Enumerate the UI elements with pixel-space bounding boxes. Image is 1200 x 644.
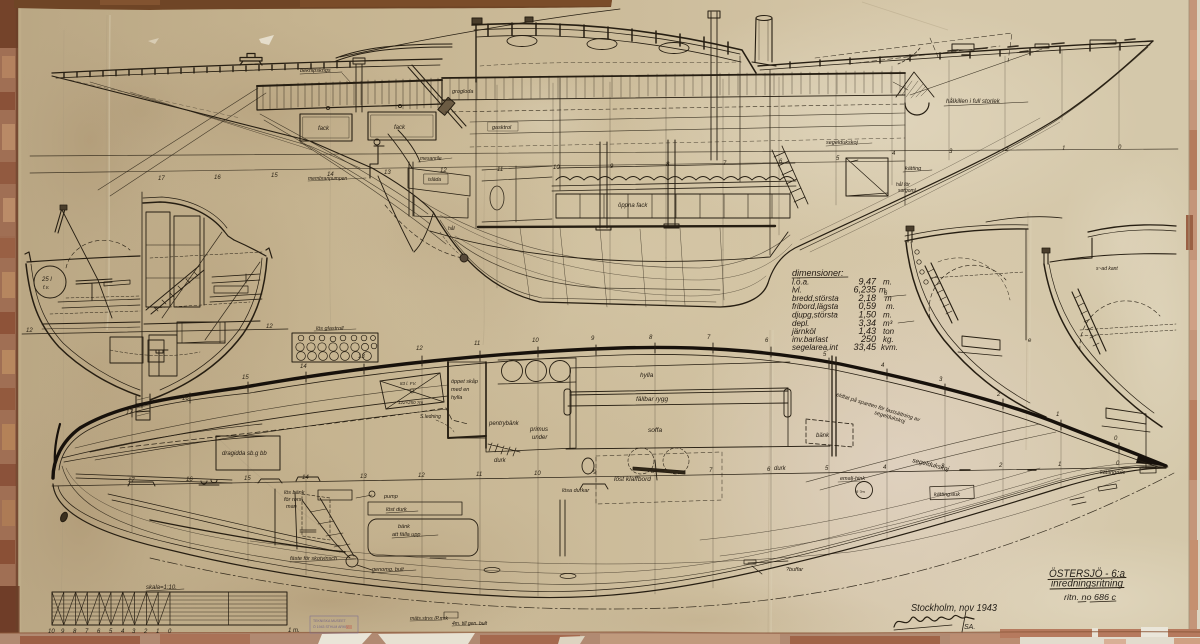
svg-text:25 l: 25 l (41, 277, 52, 283)
svg-text:ritn. no 686 c: ritn. no 686 c (1064, 592, 1117, 602)
svg-text:lösa durkar: lösa durkar (562, 488, 590, 494)
svg-text:för rors-: för rors- (284, 497, 303, 503)
svg-text:16: 16 (214, 175, 221, 181)
svg-text:14: 14 (302, 475, 309, 481)
svg-text:man: man (286, 504, 297, 510)
svg-text:pump: pump (383, 494, 398, 500)
svg-text:hål: hål (448, 225, 456, 232)
svg-text:16: 16 (182, 396, 189, 402)
svg-text:membranpumpen: membranpumpen (308, 176, 347, 182)
svg-text:lös bänk: lös bänk (284, 490, 305, 496)
svg-text:11: 11 (497, 167, 503, 173)
svg-text:15: 15 (244, 476, 251, 482)
svg-text:hylla: hylla (640, 372, 654, 379)
svg-text:mesanrile: mesanrile (420, 156, 442, 162)
svg-text:12: 12 (416, 346, 423, 352)
svg-text:2: 2 (998, 463, 1003, 469)
svg-text:2: 2 (143, 629, 148, 635)
svg-text:83 l. FV.: 83 l. FV. (400, 381, 417, 386)
svg-text:kättingrule: kättingrule (1100, 470, 1125, 476)
svg-text:durk: durk (774, 466, 787, 472)
svg-text:öppna fack: öppna fack (618, 203, 648, 209)
svg-text:1: 1 (156, 629, 159, 635)
svg-text:11: 11 (474, 341, 480, 347)
svg-text:4m. till gen. bult: 4m. till gen. bult (452, 621, 488, 627)
svg-text:12: 12 (266, 324, 273, 330)
svg-text:13: 13 (360, 474, 367, 480)
svg-text:Stockholm, nov 1943: Stockholm, nov 1943 (911, 603, 997, 614)
svg-text:2: 2 (996, 392, 1001, 398)
svg-text:kvm.: kvm. (881, 343, 898, 352)
svg-text:bänk: bänk (398, 524, 410, 530)
svg-text:15: 15 (242, 375, 249, 381)
svg-text:8 ?m: 8 ?m (856, 489, 866, 494)
svg-text:med en: med en (451, 387, 469, 393)
svg-text:14: 14 (300, 364, 307, 370)
svg-text:lös glastroll: lös glastroll (316, 326, 344, 332)
svg-text:fack: fack (394, 125, 406, 131)
svg-text:grogloda: grogloda (452, 89, 473, 95)
svg-text:kättingsluk: kättingsluk (934, 492, 960, 498)
svg-text:?buffar: ?buffar (786, 567, 804, 573)
svg-text:primus: primus (529, 427, 548, 433)
svg-text:gasktrol: gasktrol (492, 125, 512, 131)
svg-text:soffa: soffa (648, 427, 662, 434)
svg-text:10: 10 (532, 338, 539, 344)
svg-text:1: 1 (1062, 146, 1065, 152)
svg-text:fällbar rygg: fällbar rygg (636, 396, 669, 403)
svg-text:öppet skåp: öppet skåp (451, 378, 478, 385)
svg-text:S.ledning: S.ledning (420, 414, 441, 420)
svg-text:15: 15 (271, 173, 278, 179)
svg-text:10: 10 (534, 471, 541, 477)
svg-text:fack: fack (318, 126, 330, 132)
svg-text:1 m.: 1 m. (288, 628, 300, 634)
svg-text:mäts.strvs /P.mrk: mäts.strvs /P.mrk (410, 616, 448, 622)
svg-text:isläda: isläda (428, 177, 441, 183)
svg-text:under: under (532, 435, 548, 441)
svg-text:håIkillen i full storlek: håIkillen i full storlek (946, 98, 1001, 105)
svg-text:durk: durk (494, 458, 507, 464)
svg-text:11: 11 (476, 472, 482, 478)
svg-text:löst klaffbord: löst klaffbord (614, 476, 651, 483)
svg-text:pentrybänk: pentrybänk (488, 421, 520, 427)
svg-text:f.v.: f.v. (43, 285, 49, 291)
svg-text:s~ad kant: s~ad kant (1096, 266, 1118, 272)
svg-text:TEKNISKA MUSEET: TEKNISKA MUSEET (313, 619, 347, 623)
svg-text:12: 12 (26, 328, 33, 334)
svg-text:SA.: SA. (964, 624, 975, 631)
svg-text:17: 17 (158, 176, 165, 182)
svg-text:10: 10 (48, 629, 55, 635)
svg-text:122×250 ?m: 122×250 ?m (398, 400, 423, 405)
svg-text:bänk: bänk (816, 433, 830, 439)
svg-text:12: 12 (418, 473, 425, 479)
svg-text:dragidda sb.g bb: dragidda sb.g bb (222, 451, 267, 457)
svg-text:Ö 1943 STHLM ARKIV: Ö 1943 STHLM ARKIV (313, 625, 349, 629)
svg-text:1: 1 (1056, 412, 1059, 418)
svg-text:segelarea,int: segelarea,int (792, 343, 839, 352)
svg-text:dimensioner:: dimensioner: (792, 268, 844, 278)
svg-text:hylla: hylla (451, 395, 462, 401)
svg-text:33,45: 33,45 (853, 342, 877, 352)
